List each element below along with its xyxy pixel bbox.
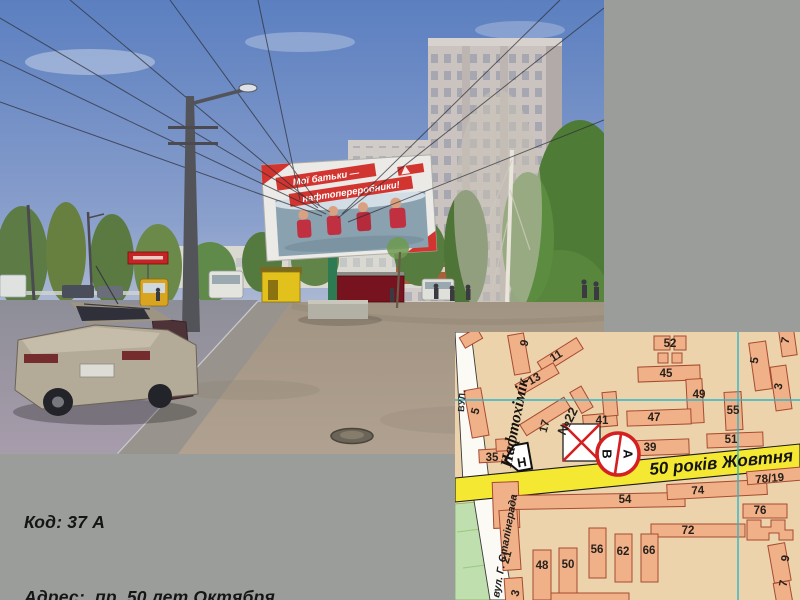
building-number: 51 bbox=[725, 434, 738, 446]
location-map: Н А В Нафтохімік №22 ВУЛ. вул. Г. Сталін… bbox=[455, 332, 800, 600]
building-number: 55 bbox=[727, 405, 740, 417]
building-number: 50 bbox=[562, 559, 575, 571]
building-number: 78/19 bbox=[755, 472, 785, 486]
manhole-cover bbox=[331, 429, 373, 444]
building-number: 54 bbox=[619, 494, 632, 506]
building-number: 62 bbox=[617, 546, 630, 558]
building-number: 47 bbox=[648, 412, 661, 424]
building-number: 72 bbox=[682, 525, 695, 537]
building-number: 35 bbox=[486, 452, 499, 464]
marker-side-b: В bbox=[600, 449, 615, 458]
building-number: 76 bbox=[754, 505, 767, 517]
yellow-bus bbox=[140, 279, 168, 306]
white-van bbox=[209, 271, 243, 298]
billboard-pole bbox=[328, 252, 337, 306]
billboard-foundation bbox=[308, 304, 368, 319]
building-number: 48 bbox=[536, 560, 549, 572]
caption-code: Код: 37 А bbox=[24, 510, 379, 535]
cloud bbox=[475, 21, 565, 39]
building-number: 66 bbox=[643, 545, 656, 557]
dirt-patch bbox=[180, 380, 320, 400]
caption-block: Код: 37 А Адрес: пр. 50 лет Октября ост.… bbox=[24, 460, 379, 600]
white-minibus bbox=[0, 275, 26, 297]
building-number: 49 bbox=[693, 389, 706, 401]
building-number: 45 bbox=[660, 368, 673, 380]
yellow-kiosk bbox=[260, 267, 302, 302]
gray-car bbox=[97, 286, 123, 298]
license-plate bbox=[80, 364, 114, 377]
building-number: 56 bbox=[591, 544, 604, 556]
building-number: 41 bbox=[596, 415, 609, 427]
building-number: 39 bbox=[644, 442, 657, 454]
location-passport-sheet: Мої батьки — нафтопереробники! bbox=[0, 0, 800, 600]
dark-car bbox=[62, 285, 94, 298]
billboard-side-marker: А В bbox=[597, 433, 639, 475]
cloud bbox=[245, 32, 355, 52]
map-street-edge-label: ВУЛ. bbox=[456, 389, 468, 412]
marker-side-a: А bbox=[621, 449, 636, 459]
caption-address: Адрес: пр. 50 лет Октября bbox=[24, 585, 379, 600]
building-number: 74 bbox=[691, 485, 705, 498]
building-number: 52 bbox=[664, 338, 677, 350]
